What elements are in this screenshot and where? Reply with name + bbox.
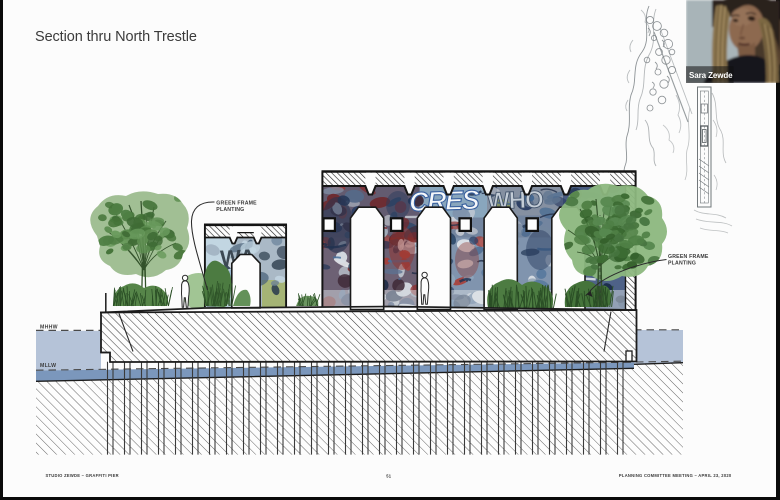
svg-text:Sara Zewde: Sara Zewde bbox=[689, 71, 733, 80]
